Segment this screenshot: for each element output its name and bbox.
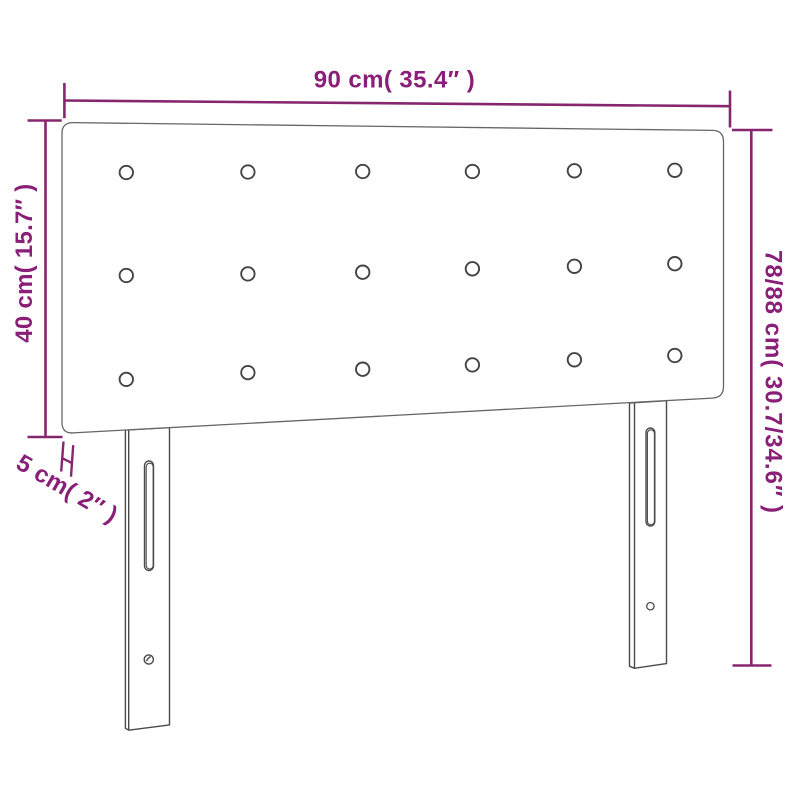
svg-text:40 cm( 15.7″ ): 40 cm( 15.7″ ) [11,184,38,343]
svg-text:78/88 cm( 30.7/34.6″ ): 78/88 cm( 30.7/34.6″ ) [760,250,787,513]
svg-text:90 cm( 35.4″ ): 90 cm( 35.4″ ) [314,66,475,93]
